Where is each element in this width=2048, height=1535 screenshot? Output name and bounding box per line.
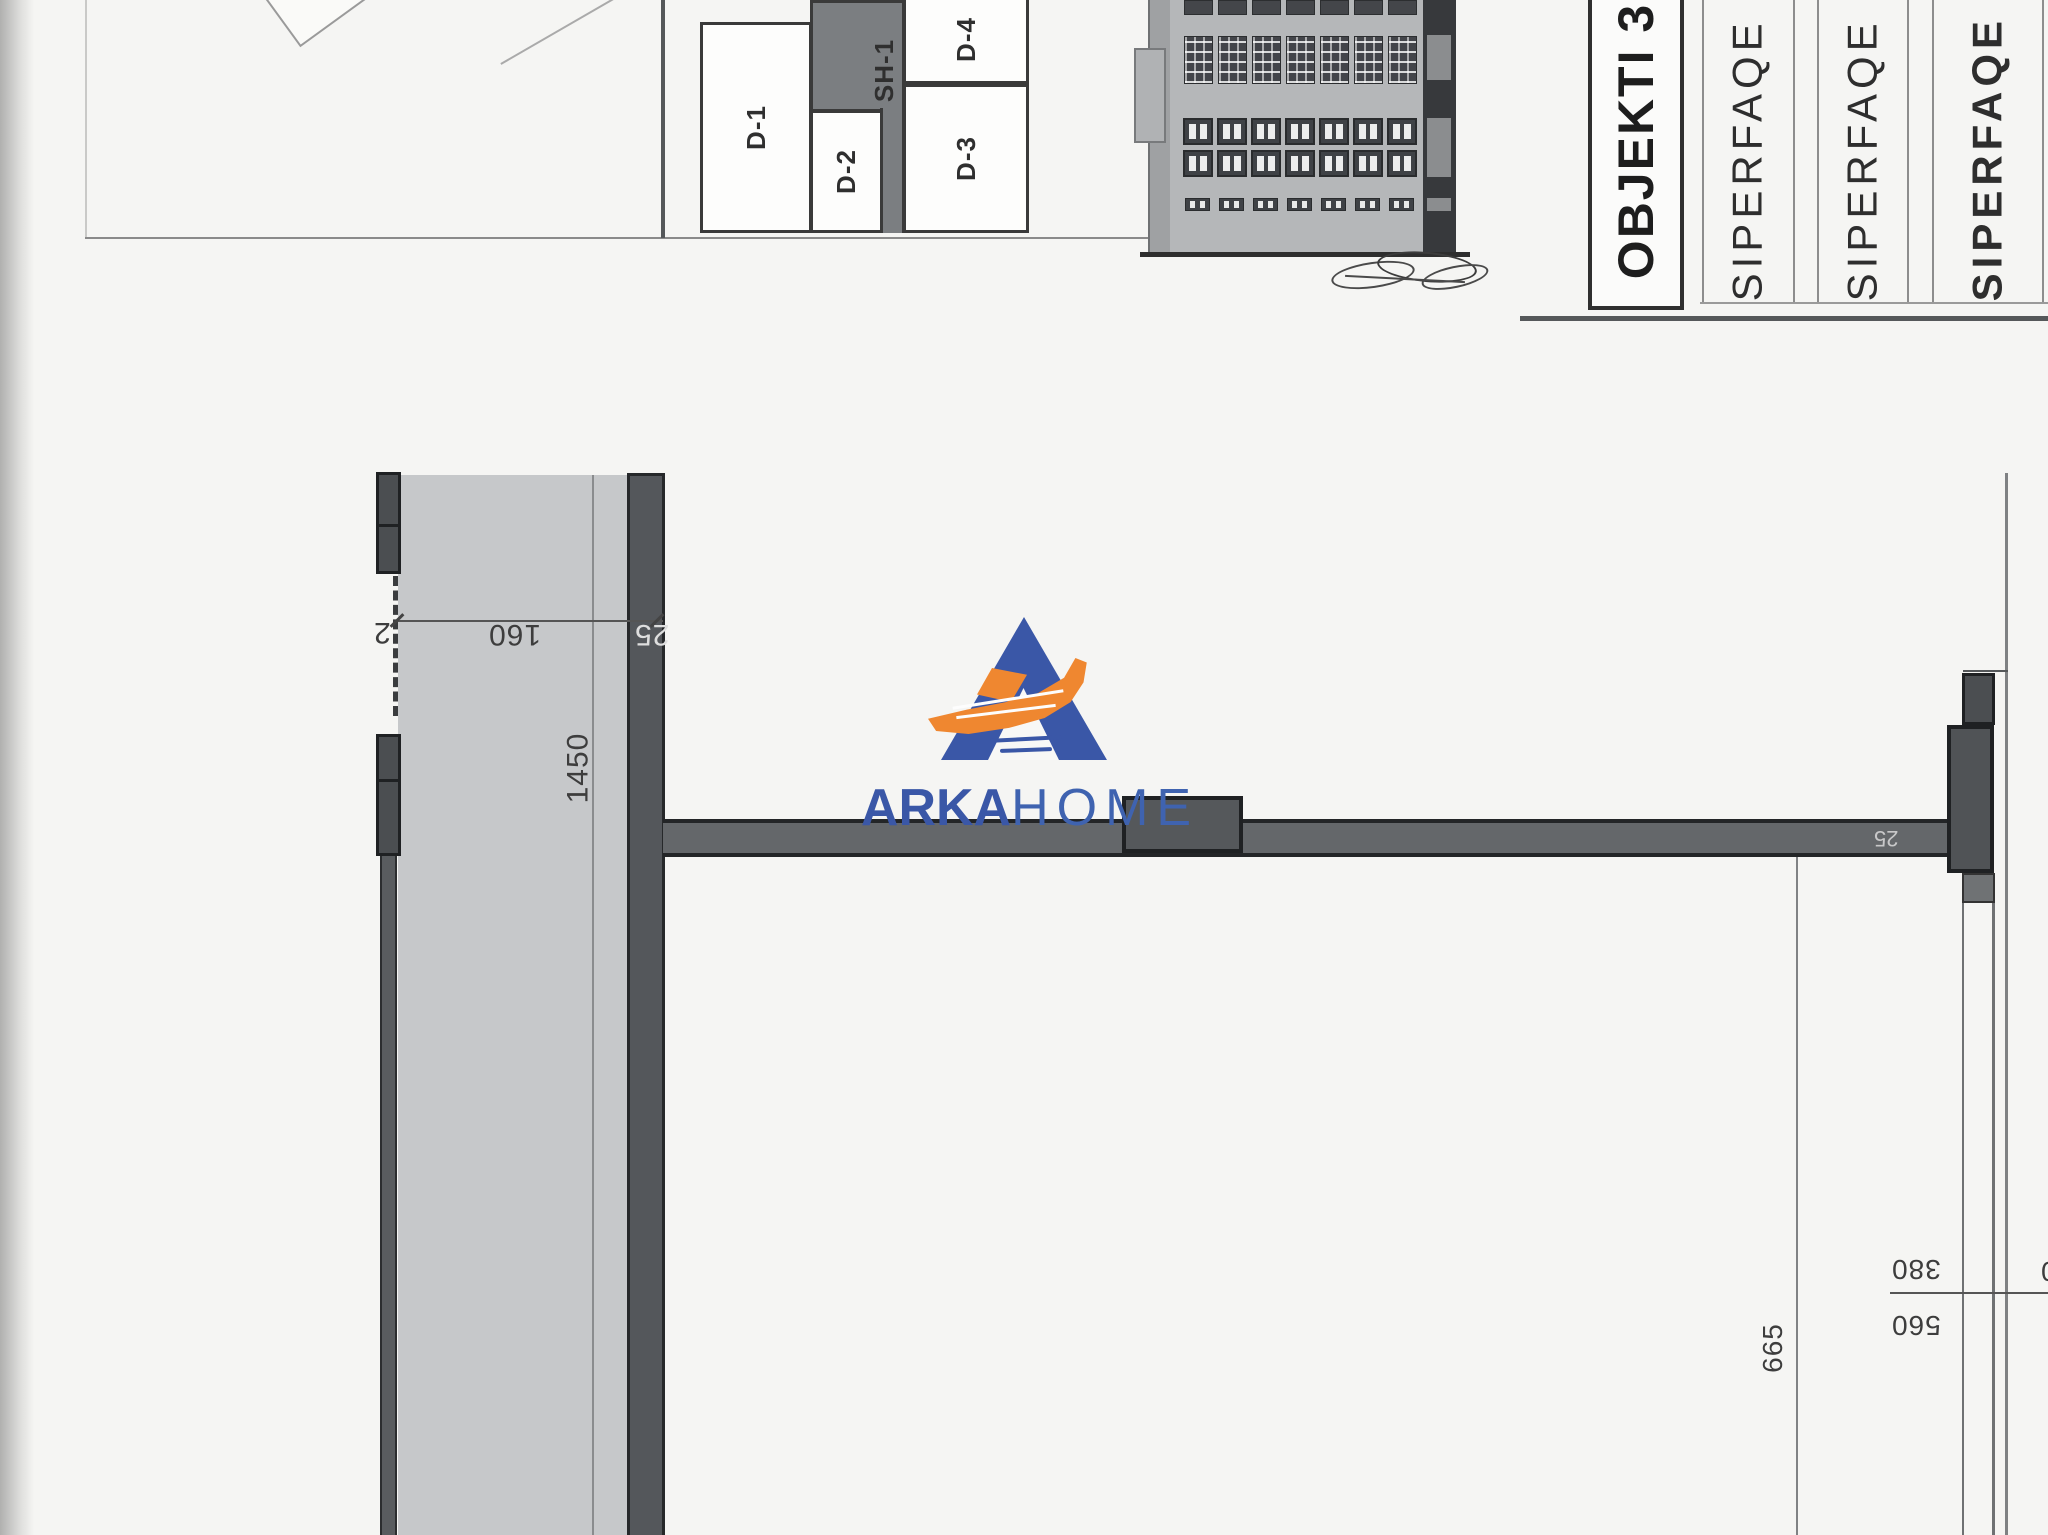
window-pane <box>1370 201 1375 208</box>
dim-line-right-horizontal <box>1890 1292 2048 1294</box>
elevation-window <box>1387 118 1417 145</box>
elevation-window <box>1219 198 1244 211</box>
elevation-window <box>1217 118 1247 145</box>
elevation-window <box>1319 118 1349 145</box>
dim-left-opening-label: 160 <box>470 614 560 654</box>
window-pane <box>1336 156 1343 171</box>
window-pane <box>1291 124 1298 139</box>
window-pane <box>1258 201 1263 208</box>
dim-line-right-vertical <box>1796 857 1798 1535</box>
elevation-window <box>1183 150 1213 177</box>
elevation-window <box>1320 36 1349 84</box>
window-pane <box>1302 156 1309 171</box>
elevation-window <box>1354 36 1383 84</box>
window-pane <box>1359 156 1366 171</box>
elevation-window <box>1251 118 1281 145</box>
scanned-floor-plan-page: D-1 D-2 SH-1 D-3 D-4 <box>0 0 2048 1535</box>
elevation-window <box>1319 150 1349 177</box>
left-jamb-upper-divider <box>376 524 401 527</box>
title-col-line <box>1793 0 1795 302</box>
window-pane <box>1189 156 1196 171</box>
window-pane <box>1360 201 1365 208</box>
window-pane <box>1234 156 1241 171</box>
elevation-window <box>1353 118 1383 145</box>
window-pane <box>1257 124 1264 139</box>
elevation-window <box>1388 36 1417 84</box>
right-jamb-upper <box>1962 673 1995 725</box>
window-pane <box>1370 156 1377 171</box>
elevation-window <box>1321 198 1346 211</box>
elevation-window <box>1355 198 1380 211</box>
window-pane <box>1224 201 1229 208</box>
dim-right-lower-label: 560 <box>1880 1306 1952 1344</box>
window-pane <box>1393 156 1400 171</box>
key-plan: D-1 D-2 SH-1 D-3 D-4 <box>0 0 1100 240</box>
right-twin-line-b <box>1992 903 1995 1535</box>
title-col-2: SIPERFAQE E <box>1817 0 1907 310</box>
dim-right-upper-label: 380 <box>1880 1250 1952 1288</box>
window-pane <box>1190 201 1195 208</box>
dim-left-wall-label: 25 <box>622 614 682 654</box>
left-jamb-upper <box>376 472 401 574</box>
title-col-3: SIPERFAQE T <box>1932 0 2042 310</box>
dim-right-wall-label: 25 <box>1868 822 1904 854</box>
left-thin-wall <box>380 856 397 1535</box>
logo-word-light: HOME <box>1011 778 1199 838</box>
right-frame-cap-line <box>1963 670 2008 672</box>
window-pane <box>1292 201 1297 208</box>
elevation-window <box>1320 0 1349 15</box>
elevation-window <box>1184 36 1213 84</box>
elevation-window <box>1286 36 1315 84</box>
window-pane <box>1200 201 1205 208</box>
window-pane <box>1189 124 1196 139</box>
right-twin-line-a <box>1962 903 1964 1535</box>
window-pane <box>1268 124 1275 139</box>
arkahome-logo: ARKA HOME <box>840 600 1220 850</box>
elevation-window <box>1388 0 1417 15</box>
elevation-balcony-slab <box>1134 48 1166 143</box>
building-elevation <box>1100 0 1500 310</box>
elevation-window <box>1251 150 1281 177</box>
window-pane <box>1404 201 1409 208</box>
window-pane <box>1394 201 1399 208</box>
logo-wordmark: ARKA HOME <box>848 778 1212 832</box>
window-pane <box>1200 124 1207 139</box>
elevation-window <box>1287 198 1312 211</box>
window-pane <box>1336 124 1343 139</box>
elevation-window <box>1217 150 1247 177</box>
window-pane <box>1268 156 1275 171</box>
window-pane <box>1325 156 1332 171</box>
elevation-window <box>1387 150 1417 177</box>
elevation-window <box>1218 0 1247 15</box>
elevation-window <box>1218 36 1247 84</box>
elevation-window <box>1286 0 1315 15</box>
elevation-window <box>1285 118 1315 145</box>
window-pane <box>1291 156 1298 171</box>
elevation-window <box>1253 198 1278 211</box>
title-block-thick-line <box>1520 316 2048 321</box>
elevation-window <box>1252 0 1281 15</box>
window-pane <box>1325 124 1332 139</box>
elevation-window <box>1185 198 1210 211</box>
elevation-window <box>1184 0 1213 15</box>
title-col-line <box>2042 0 2044 302</box>
elevation-dark-strip-slit-2 <box>1427 118 1451 177</box>
elevation-windows <box>1170 0 1423 253</box>
elevation-window <box>1183 118 1213 145</box>
left-wall-band-inner-line <box>592 475 594 1535</box>
dim-edge-partial-label: 0 <box>2030 1252 2048 1290</box>
left-jamb-lower-divider <box>376 779 401 782</box>
key-plan-label-d3: D-3 <box>903 84 1029 233</box>
dim-left-vertical-label: 1450 <box>548 718 608 818</box>
elevation-window <box>1285 150 1315 177</box>
window-pane <box>1336 201 1341 208</box>
title-block-underline <box>1700 302 2048 304</box>
window-pane <box>1404 156 1411 171</box>
logo-word-bold: ARKA <box>861 778 1011 838</box>
window-pane <box>1359 124 1366 139</box>
key-plan-label-d1: D-1 <box>700 22 812 233</box>
window-pane <box>1404 124 1411 139</box>
window-pane <box>1200 156 1207 171</box>
window-pane <box>1302 201 1307 208</box>
window-pane <box>1223 124 1230 139</box>
elevation-window <box>1354 0 1383 15</box>
window-pane <box>1393 124 1400 139</box>
key-plan-label-d4: D-4 <box>903 0 1029 84</box>
object-title: OBJEKTI 3 <box>1588 0 1684 310</box>
title-col-1: SIPERFAQE E <box>1702 0 1793 310</box>
dim-left-tick-label: 2 <box>362 612 402 652</box>
window-pane <box>1257 156 1264 171</box>
window-pane <box>1234 124 1241 139</box>
left-jamb-lower <box>376 734 401 856</box>
window-pane <box>1370 124 1377 139</box>
window-pane <box>1223 156 1230 171</box>
window-pane <box>1234 201 1239 208</box>
elevation-window <box>1252 36 1281 84</box>
window-pane <box>1326 201 1331 208</box>
title-col-line <box>1907 0 1909 302</box>
elevation-window <box>1353 150 1383 177</box>
window-pane <box>1268 201 1273 208</box>
title-block: OBJEKTI 3 SIPERFAQE E SIPERFAQE E SIPERF… <box>1470 0 2048 330</box>
elevation-dark-strip-slit-3 <box>1427 198 1451 211</box>
window-pane <box>1302 124 1309 139</box>
right-boundary-line <box>2005 473 2008 1535</box>
elevation-window <box>1389 198 1414 211</box>
dim-right-vertical-label: 665 <box>1748 1298 1798 1398</box>
elevation-dark-strip-slit-1 <box>1427 35 1451 80</box>
right-jamb-lower <box>1962 873 1995 903</box>
right-jamb-main <box>1947 725 1994 873</box>
